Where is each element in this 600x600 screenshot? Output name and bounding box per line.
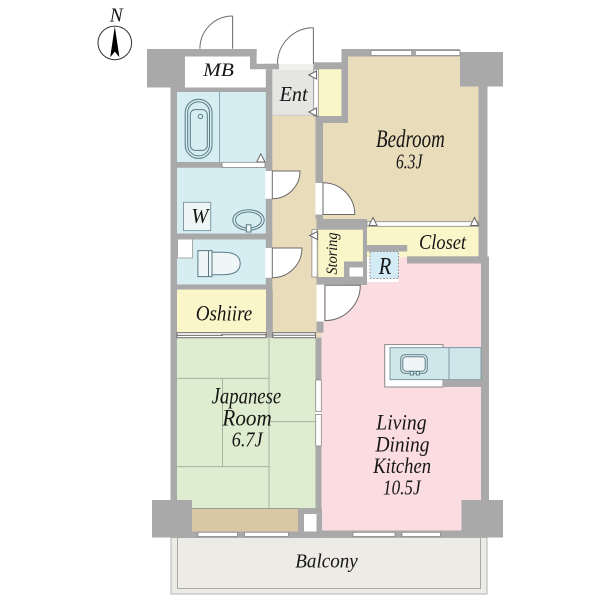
svg-text:W: W — [191, 204, 210, 228]
svg-text:Japanese: Japanese — [212, 383, 282, 408]
svg-text:N: N — [109, 6, 124, 27]
svg-text:Oshiire: Oshiire — [196, 301, 253, 326]
svg-text:Storing: Storing — [324, 232, 341, 274]
svg-text:Kitchen: Kitchen — [372, 453, 431, 478]
svg-text:10.5J: 10.5J — [383, 476, 422, 500]
svg-text:Ent: Ent — [279, 82, 309, 106]
svg-text:MB: MB — [202, 60, 234, 81]
svg-text:6.7J: 6.7J — [232, 428, 264, 452]
svg-text:Closet: Closet — [419, 230, 467, 254]
svg-text:Balcony: Balcony — [295, 551, 358, 573]
svg-text:6.3J: 6.3J — [396, 150, 424, 174]
svg-text:R: R — [378, 254, 392, 280]
